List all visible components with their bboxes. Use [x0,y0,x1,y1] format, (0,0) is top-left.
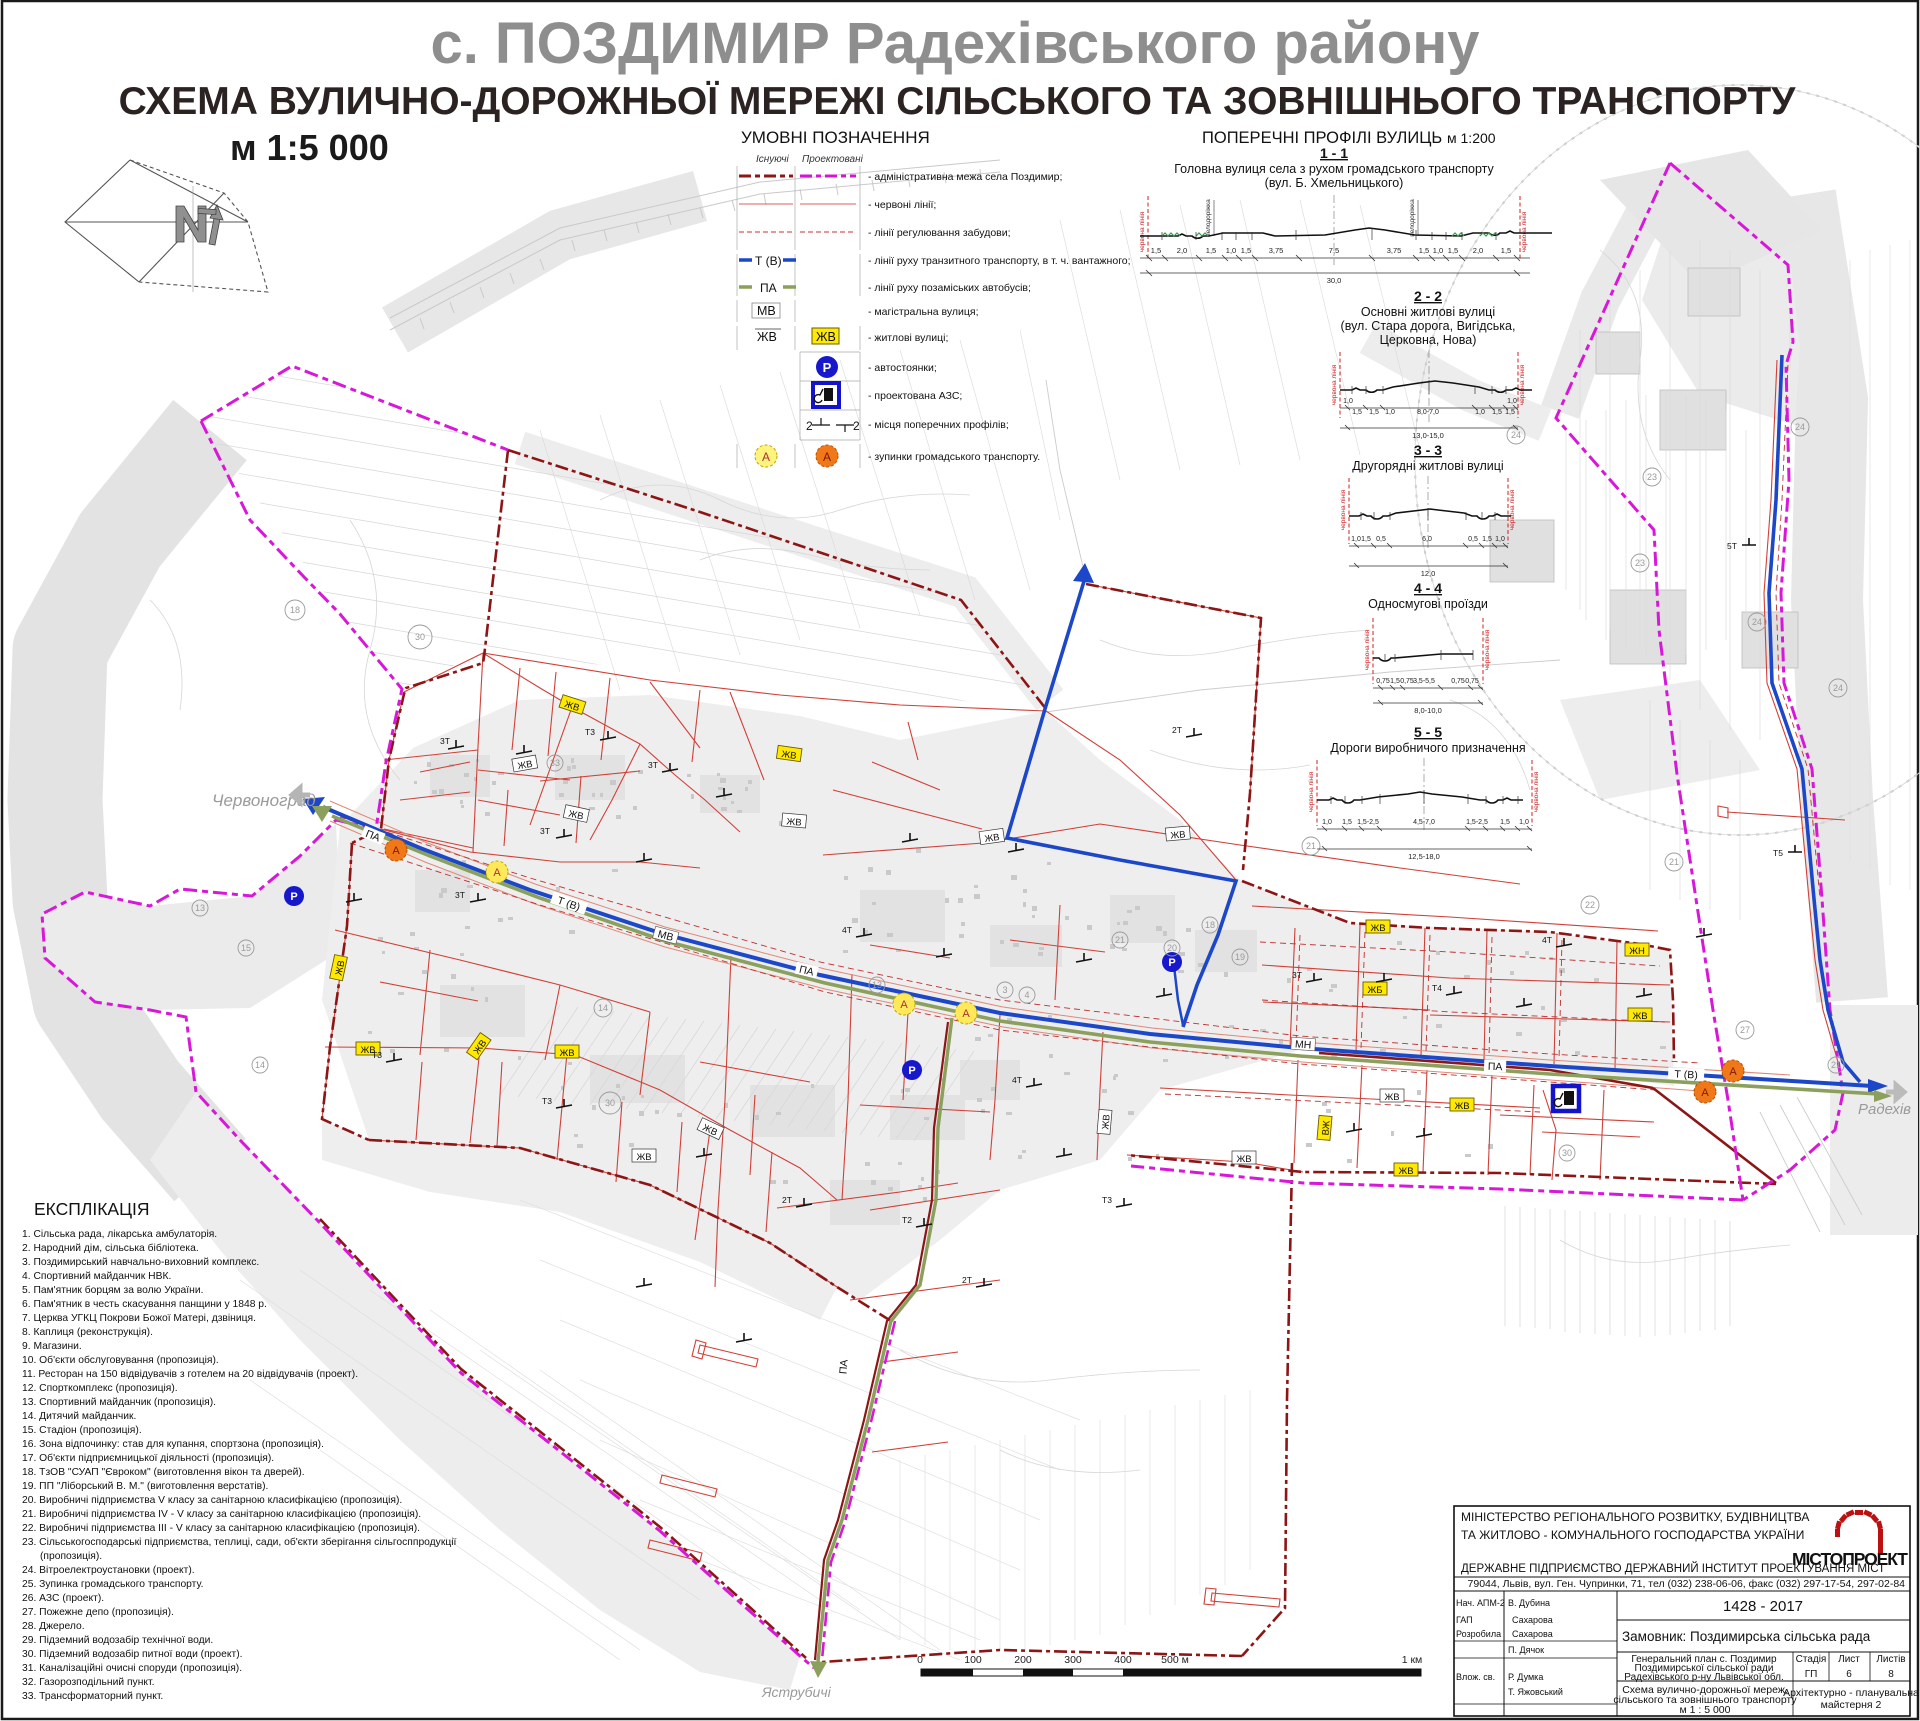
svg-text:21: 21 [1306,841,1316,851]
svg-text:28. Джерело.: 28. Джерело. [22,1621,85,1632]
svg-text:15. Стадіон (пропозиція).: 15. Стадіон (пропозиція). [22,1425,142,1436]
svg-text:Лист: Лист [1838,1654,1860,1665]
svg-text:23. Сільськогосподарські підпр: 23. Сільськогосподарські підприємства, т… [22,1536,457,1548]
svg-text:червона лінія: червона лінія [1307,771,1315,812]
svg-text:7,5: 7,5 [1329,246,1339,255]
svg-text:Р: Р [1168,957,1175,969]
svg-text:14: 14 [255,1060,265,1070]
svg-text:ГП: ГП [1805,1669,1818,1680]
svg-text:3Т: 3Т [455,890,465,900]
svg-text:1,5: 1,5 [1361,536,1371,543]
svg-text:Церковна, Нова): Церковна, Нова) [1380,333,1477,347]
svg-text:Р. Думка: Р. Думка [1508,1672,1543,1682]
svg-text:1,0: 1,0 [1385,409,1395,416]
svg-text:0,75: 0,75 [1400,678,1414,685]
svg-text:1428 - 2017: 1428 - 2017 [1723,1598,1803,1615]
svg-text:червона лінія: червона лінія [1483,629,1491,670]
svg-text:червона лінія: червона лінія [1520,211,1528,252]
svg-text:червона лінія: червона лінія [1518,364,1526,405]
svg-text:Архітектурно - планувальна: Архітектурно - планувальна [1783,1687,1919,1699]
svg-text:МІНІСТЕРСТВО РЕГІОНАЛЬНОГО РОЗ: МІНІСТЕРСТВО РЕГІОНАЛЬНОГО РОЗВИТКУ, БУД… [1461,1510,1809,1524]
svg-text:А: А [493,867,501,879]
svg-text:ЖН: ЖН [1629,946,1645,957]
svg-text:31. Каналізаційні очисні спору: 31. Каналізаційні очисні споруди (пропоз… [22,1663,242,1674]
svg-text:5Т: 5Т [1727,541,1737,551]
svg-text:2. Народний дім, сільська бібл: 2. Народний дім, сільська бібліотека. [22,1242,199,1254]
svg-text:Радехівського р-ну Львівської: Радехівського р-ну Львівської обл. [1624,1671,1784,1683]
svg-text:ЖВ: ЖВ [1454,1101,1469,1112]
svg-text:25. Зупинка громадського транс: 25. Зупинка громадського транспорту. [22,1579,204,1590]
svg-text:2,0: 2,0 [1177,246,1187,255]
svg-text:ЖВ: ЖВ [757,330,777,344]
svg-text:ЖВ: ЖВ [816,330,836,344]
svg-text:0,75: 0,75 [1376,678,1390,685]
svg-text:4 - 4: 4 - 4 [1414,580,1442,596]
svg-text:ЖВ: ЖВ [786,816,802,828]
svg-text:27. Пожежне депо (пропозиція).: 27. Пожежне депо (пропозиція). [22,1607,174,1618]
svg-text:0,75: 0,75 [1451,678,1465,685]
svg-text:1,0: 1,0 [1433,246,1443,255]
svg-text:А: А [823,450,831,464]
svg-text:32. Газорозподільний пункт.: 32. Газорозподільний пункт. [22,1677,154,1688]
svg-text:- проектована АЗС;: - проектована АЗС; [868,390,962,402]
svg-text:3Т: 3Т [440,736,450,746]
svg-text:Влож. св.: Влож. св. [1456,1672,1495,1682]
svg-text:УМОВНІ ПОЗНАЧЕННЯ: УМОВНІ ПОЗНАЧЕННЯ [741,128,930,147]
svg-text:33. Трансформаторний пункт.: 33. Трансформаторний пункт. [22,1690,163,1702]
svg-text:Замовник: Поздимирська сільськ: Замовник: Поздимирська сільська рада [1622,1629,1871,1644]
svg-text:ПА: ПА [837,1359,850,1375]
svg-text:велодоріжка: велодоріжка [1408,199,1416,237]
svg-text:3,5-5,5: 3,5-5,5 [1413,678,1435,685]
svg-text:1,5: 1,5 [1505,409,1515,416]
svg-text:30: 30 [1562,1148,1572,1158]
svg-text:1,5-2,5: 1,5-2,5 [1466,819,1488,826]
svg-text:ЖВ: ЖВ [1236,1154,1251,1165]
svg-text:ЖВ: ЖВ [1100,1114,1112,1130]
svg-text:Дороги виробничого призначення: Дороги виробничого призначення [1330,741,1525,755]
svg-text:1,5: 1,5 [1151,246,1161,255]
svg-text:30,0: 30,0 [1327,276,1342,285]
svg-text:- зупинки громадського транспо: - зупинки громадського транспорту. [868,451,1040,463]
svg-text:6: 6 [1846,1669,1852,1680]
svg-text:ЖВ: ЖВ [1384,1092,1399,1103]
svg-text:А: А [1701,1087,1709,1099]
svg-text:5. Пам'ятник борцям за волю Ук: 5. Пам'ятник борцям за волю України. [22,1284,203,1296]
svg-text:Яструбичі: Яструбичі [761,1684,832,1700]
svg-text:ДЕРЖАВНЕ ПІДПРИЄМСТВО ДЕРЖАВН: ДЕРЖАВНЕ ПІДПРИЄМСТВО ДЕРЖАВНИЙ ІНСТИТУТ… [1461,1562,1885,1575]
svg-text:7. Церква УГКЦ Покрови Божої М: 7. Церква УГКЦ Покрови Божої Матері, дзв… [22,1313,256,1324]
svg-text:24: 24 [1511,430,1521,440]
svg-text:400: 400 [1114,1654,1132,1666]
svg-text:(пропозиція).: (пропозиція). [40,1551,102,1562]
svg-text:2: 2 [806,419,813,433]
svg-text:ЖБ: ЖБ [1367,985,1382,996]
svg-text:24. Вітроелектроустановки (про: 24. Вітроелектроустановки (проект). [22,1565,195,1576]
svg-text:В. Дубина: В. Дубина [1508,1598,1550,1608]
svg-text:Т. Яжовський: Т. Яжовський [1508,1687,1563,1697]
svg-text:9. Магазини.: 9. Магазини. [22,1341,82,1352]
svg-text:Т (В): Т (В) [755,254,782,268]
svg-text:16. Зона відпочинку: став для: 16. Зона відпочинку: став для купання, с… [22,1439,324,1450]
svg-text:1,0: 1,0 [1507,398,1517,405]
svg-text:м 1:5 000: м 1:5 000 [230,127,389,168]
svg-text:0: 0 [917,1654,923,1666]
svg-text:0,5: 0,5 [1376,536,1386,543]
svg-text:P: P [823,360,832,375]
svg-text:1,0: 1,0 [1495,536,1505,543]
svg-text:100: 100 [964,1654,982,1666]
svg-text:Т3: Т3 [1102,1195,1112,1205]
svg-text:Розробила: Розробила [1456,1629,1501,1639]
svg-text:14: 14 [598,1003,608,1013]
svg-text:1,0: 1,0 [1322,819,1332,826]
svg-text:1,0: 1,0 [1351,536,1361,543]
svg-text:ЖВ: ЖВ [1370,923,1385,934]
svg-text:А: А [900,999,908,1011]
svg-text:м 1:200: м 1:200 [1447,130,1496,146]
svg-text:- адміністративна межа села По: - адміністративна межа села Поздимир; [868,171,1062,183]
svg-text:2,0: 2,0 [1473,246,1483,255]
svg-text:19: 19 [1235,952,1245,962]
svg-text:4,5-7,0: 4,5-7,0 [1413,819,1435,826]
svg-text:- магістральна вулиця;: - магістральна вулиця; [868,306,979,318]
svg-text:3Т: 3Т [648,760,658,770]
svg-text:(вул. Б. Хмельницького): (вул. Б. Хмельницького) [1265,176,1404,190]
svg-text:червона лінія: червона лінія [1330,364,1338,405]
svg-text:0,5: 0,5 [1468,536,1478,543]
svg-text:ЖВ: ЖВ [1398,1166,1413,1177]
svg-text:3Т: 3Т [540,826,550,836]
svg-text:11. Ресторан на 150 відвідувач: 11. Ресторан на 150 відвідувачів з готел… [22,1369,358,1380]
svg-text:Листів: Листів [1876,1654,1905,1665]
svg-text:- лінії регулювання забудови;: - лінії регулювання забудови; [868,227,1011,239]
svg-text:ЖВ: ЖВ [559,1048,574,1059]
svg-text:ПА: ПА [1488,1061,1503,1074]
svg-text:21: 21 [1669,857,1679,867]
svg-text:19. ПП "Ліборський В. М." (виг: 19. ПП "Ліборський В. М." (виготовлення … [22,1480,268,1492]
svg-text:26. АЗС (проект).: 26. АЗС (проект). [22,1593,104,1604]
svg-text:Р: Р [290,891,297,903]
svg-text:22: 22 [1585,900,1595,910]
svg-text:- місця поперечних профілів;: - місця поперечних профілів; [868,419,1009,431]
svg-text:200: 200 [1014,1654,1032,1666]
svg-text:24: 24 [1752,617,1762,627]
svg-text:1,5: 1,5 [1500,819,1510,826]
svg-text:6. Пам'ятник в честь скасуванн: 6. Пам'ятник в честь скасування панщини … [22,1299,267,1310]
svg-text:- червоні лінії;: - червоні лінії; [868,199,936,211]
svg-text:1,0: 1,0 [1343,398,1353,405]
svg-text:- житлові вулиці;: - житлові вулиці; [868,332,948,344]
svg-text:МН: МН [1295,1038,1312,1051]
svg-text:1,5-2,5: 1,5-2,5 [1357,819,1379,826]
svg-text:ЖВ: ЖВ [984,832,1000,845]
svg-text:майстерня 2: майстерня 2 [1821,1699,1882,1711]
svg-text:18: 18 [1205,920,1215,930]
svg-text:1,5: 1,5 [1206,246,1216,255]
svg-text:3,75: 3,75 [1387,246,1402,255]
svg-text:2: 2 [853,419,860,433]
svg-text:0,75: 0,75 [1465,678,1479,685]
svg-text:4Т: 4Т [1012,1075,1022,1085]
svg-text:Проектовані: Проектовані [802,154,864,165]
svg-text:30: 30 [605,1098,615,1108]
svg-text:18. ТзОВ "СУАП "Євроком" (виго: 18. ТзОВ "СУАП "Євроком" (виготовлення в… [22,1467,305,1478]
svg-text:1 - 1: 1 - 1 [1320,145,1348,161]
svg-text:500 м: 500 м [1161,1654,1189,1666]
svg-text:13. Спортивний майданчик (проп: 13. Спортивний майданчик (пропозиція). [22,1397,216,1408]
svg-text:червона лінія: червона лінія [1508,489,1516,530]
svg-text:Односмугові проїзди: Односмугові проїзди [1368,597,1488,611]
svg-text:2Т: 2Т [1172,725,1182,735]
svg-text:А: А [762,450,770,464]
svg-text:велодоріжка: велодоріжка [1204,199,1212,237]
svg-text:1 км: 1 км [1402,1654,1423,1666]
svg-text:1,5: 1,5 [1501,246,1511,255]
svg-text:ЖВ: ЖВ [781,749,797,762]
svg-text:Основні житлові вулиці: Основні житлові вулиці [1361,305,1495,319]
svg-text:Існуючі: Існуючі [756,154,790,165]
svg-text:м 1 : 5 000: м 1 : 5 000 [1679,1704,1730,1716]
svg-text:А: А [1729,1066,1737,1078]
svg-text:3: 3 [1002,985,1007,995]
svg-text:20. Виробничі підприємства V к: 20. Виробничі підприємства V класу за са… [22,1494,402,1506]
svg-text:Т (В): Т (В) [1674,1068,1698,1081]
svg-text:Т3: Т3 [585,727,595,737]
svg-text:27: 27 [1740,1025,1750,1035]
svg-text:21: 21 [1831,1060,1841,1070]
svg-text:29. Підземний водозабір техніч: 29. Підземний водозабір технічної води. [22,1634,213,1646]
svg-text:8,0-10,0: 8,0-10,0 [1414,706,1442,715]
svg-text:Нач. АПМ-2: Нач. АПМ-2 [1456,1598,1505,1608]
svg-text:ТА ЖИТЛОВО - КОМУНАЛЬНОГО ГОСП: ТА ЖИТЛОВО - КОМУНАЛЬНОГО ГОСПОДАРСТВА У… [1461,1528,1804,1542]
svg-text:23: 23 [1635,558,1645,568]
svg-text:ЖВ: ЖВ [1632,1011,1647,1022]
svg-text:5 - 5: 5 - 5 [1414,724,1442,740]
svg-text:ПА: ПА [760,281,777,295]
svg-text:Т3: Т3 [372,1050,382,1060]
svg-text:24: 24 [1795,422,1805,432]
svg-text:А: А [962,1008,970,1020]
svg-text:с. ПОЗДИМИР Радехівського райо: с. ПОЗДИМИР Радехівського району [430,11,1479,76]
svg-text:4. Спортивний майданчик НВК.: 4. Спортивний майданчик НВК. [22,1271,171,1282]
svg-text:1,0: 1,0 [1475,409,1485,416]
svg-text:18: 18 [290,605,300,615]
svg-text:3. Поздимирський навчально-вих: 3. Поздимирський навчально-виховний комп… [22,1257,259,1268]
svg-text:12,5-18,0: 12,5-18,0 [1408,852,1440,861]
svg-text:4: 4 [1024,990,1029,1000]
svg-text:13,0-15,0: 13,0-15,0 [1412,431,1444,440]
svg-text:17. Об'єкти підприємницької ді: 17. Об'єкти підприємницької діяльності (… [22,1452,274,1464]
svg-text:ЕКСПЛІКАЦІЯ: ЕКСПЛІКАЦІЯ [34,1199,150,1219]
svg-text:Радехів: Радехів [1858,1101,1911,1118]
svg-text:ВЖ: ВЖ [1320,1120,1332,1136]
svg-text:2 - 2: 2 - 2 [1414,288,1442,304]
svg-text:1,5: 1,5 [1241,246,1251,255]
svg-text:Другорядні житлові вулиці: Другорядні житлові вулиці [1352,459,1503,473]
svg-text:6,0: 6,0 [1422,536,1432,543]
svg-text:79044, Львів, вул. Ген. Чуприн: 79044, Львів, вул. Ген. Чупринки, 71, те… [1468,1578,1906,1590]
svg-text:2Т: 2Т [782,1195,792,1205]
svg-text:А: А [392,845,400,857]
svg-text:8,0-7,0: 8,0-7,0 [1417,409,1439,416]
svg-text:Т5: Т5 [1773,848,1783,858]
svg-text:8. Каплиця (реконструкція).: 8. Каплиця (реконструкція). [22,1327,153,1338]
svg-text:2Т: 2Т [962,1275,972,1285]
svg-text:СХЕМА ВУЛИЧНО-ДОРОЖНЬОЇ МЕРЕЖІ: СХЕМА ВУЛИЧНО-ДОРОЖНЬОЇ МЕРЕЖІ СІЛЬСЬКОГ… [119,80,1797,123]
svg-text:30: 30 [415,632,425,642]
svg-text:червона лінія: червона лінія [1532,771,1540,812]
svg-text:Сахарова: Сахарова [1512,1629,1553,1639]
svg-text:3Т: 3Т [1292,970,1302,980]
svg-text:ЖВ: ЖВ [1170,829,1186,841]
svg-text:червона лінія: червона лінія [1339,489,1347,530]
svg-text:12,0: 12,0 [1421,569,1436,578]
svg-text:3 - 3: 3 - 3 [1414,442,1442,458]
svg-text:12. Спорткомплекс (пропозиція): 12. Спорткомплекс (пропозиція). [22,1383,178,1394]
svg-text:Р: Р [908,1065,915,1077]
svg-text:Т4: Т4 [1432,983,1442,993]
svg-text:20: 20 [1167,943,1177,953]
svg-text:21: 21 [1115,935,1125,945]
svg-text:1,5: 1,5 [1352,409,1362,416]
svg-text:1,0: 1,0 [1226,246,1236,255]
svg-text:Т2: Т2 [902,1215,912,1225]
svg-text:1,0: 1,0 [1519,819,1529,826]
svg-text:1,5: 1,5 [1492,409,1502,416]
svg-text:13: 13 [872,980,882,990]
svg-text:1,5: 1,5 [1419,246,1429,255]
svg-text:15: 15 [241,943,251,953]
svg-text:3,75: 3,75 [1269,246,1284,255]
svg-text:13: 13 [195,903,205,913]
svg-text:1,5: 1,5 [1482,536,1492,543]
svg-text:Т3: Т3 [542,1096,552,1106]
svg-text:1,5: 1,5 [1390,678,1400,685]
svg-text:(вул. Стара дорога, Вигідська,: (вул. Стара дорога, Вигідська, [1341,319,1516,333]
svg-text:8: 8 [1888,1669,1894,1680]
svg-text:- лінії руху транзитного транс: - лінії руху транзитного транспорту, в т… [868,255,1131,267]
svg-text:ЖВ: ЖВ [636,1152,651,1163]
svg-text:- лінії руху позаміських автоб: - лінії руху позаміських автобусів; [868,282,1031,294]
svg-text:П. Дячок: П. Дячок [1508,1645,1544,1655]
svg-text:4Т: 4Т [842,925,852,935]
svg-text:22. Виробничі підприємства III: 22. Виробничі підприємства III - V класу… [22,1522,420,1534]
svg-text:4Т: 4Т [1542,935,1552,945]
svg-text:червона лінія: червона лінія [1138,211,1146,252]
svg-text:МВ: МВ [757,304,776,318]
svg-text:23: 23 [1647,472,1657,482]
svg-text:- автостоянки;: - автостоянки; [868,362,937,374]
svg-text:14. Дитячий майданчик.: 14. Дитячий майданчик. [22,1411,136,1422]
svg-text:10. Об'єкти обслуговування (пр: 10. Об'єкти обслуговування (пропозиція). [22,1354,219,1366]
svg-text:24: 24 [1833,683,1843,693]
svg-text:червона лінія: червона лінія [1363,629,1371,670]
svg-text:30. Підземний водозабір питної: 30. Підземний водозабір питної води (про… [22,1648,243,1660]
svg-text:33: 33 [550,758,560,768]
svg-text:300: 300 [1064,1654,1082,1666]
svg-text:ГАП: ГАП [1456,1615,1473,1625]
svg-text:1,5: 1,5 [1342,819,1352,826]
svg-text:1,5: 1,5 [1448,246,1458,255]
svg-text:21. Виробничі підприємства IV: 21. Виробничі підприємства IV - V класу … [22,1508,421,1520]
svg-text:Головна вулиця села з рухом гр: Головна вулиця села з рухом громадського… [1174,162,1494,176]
svg-text:Стадія: Стадія [1796,1654,1827,1665]
svg-text:1. Сільська рада, лікарська ам: 1. Сільська рада, лікарська амбулаторія. [22,1228,217,1240]
svg-text:1,5: 1,5 [1369,409,1379,416]
svg-text:Сахарова: Сахарова [1512,1615,1553,1625]
